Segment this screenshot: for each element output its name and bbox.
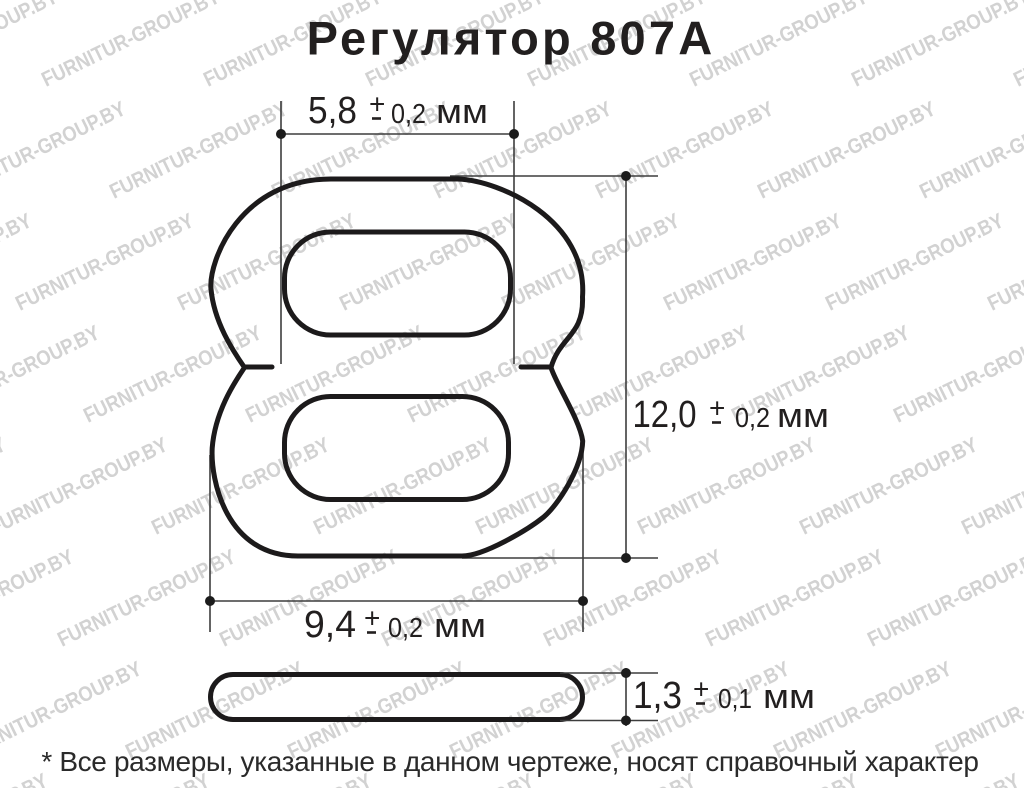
svg-text:5,8: 5,8 xyxy=(308,90,357,132)
svg-text:0,2: 0,2 xyxy=(391,98,426,129)
svg-text:+: + xyxy=(709,393,725,424)
svg-text:Регулятор 807А: Регулятор 807А xyxy=(307,12,716,65)
svg-text:мм: мм xyxy=(763,678,815,716)
svg-text:+: + xyxy=(693,674,709,705)
svg-text:1,3: 1,3 xyxy=(633,675,682,717)
svg-text:мм: мм xyxy=(434,607,486,645)
svg-text:мм: мм xyxy=(436,93,488,131)
svg-text:0,2: 0,2 xyxy=(388,612,423,643)
svg-text:9,4: 9,4 xyxy=(304,604,356,646)
svg-text:* Все размеры, указанные в дан: * Все размеры, указанные в данном чертеж… xyxy=(41,746,978,777)
svg-text:0,1: 0,1 xyxy=(718,683,752,714)
svg-text:+: + xyxy=(364,603,380,634)
svg-text:мм: мм xyxy=(777,397,829,435)
svg-text:12,0: 12,0 xyxy=(633,394,697,436)
svg-text:0,2: 0,2 xyxy=(735,402,770,433)
svg-text:+: + xyxy=(369,89,385,120)
